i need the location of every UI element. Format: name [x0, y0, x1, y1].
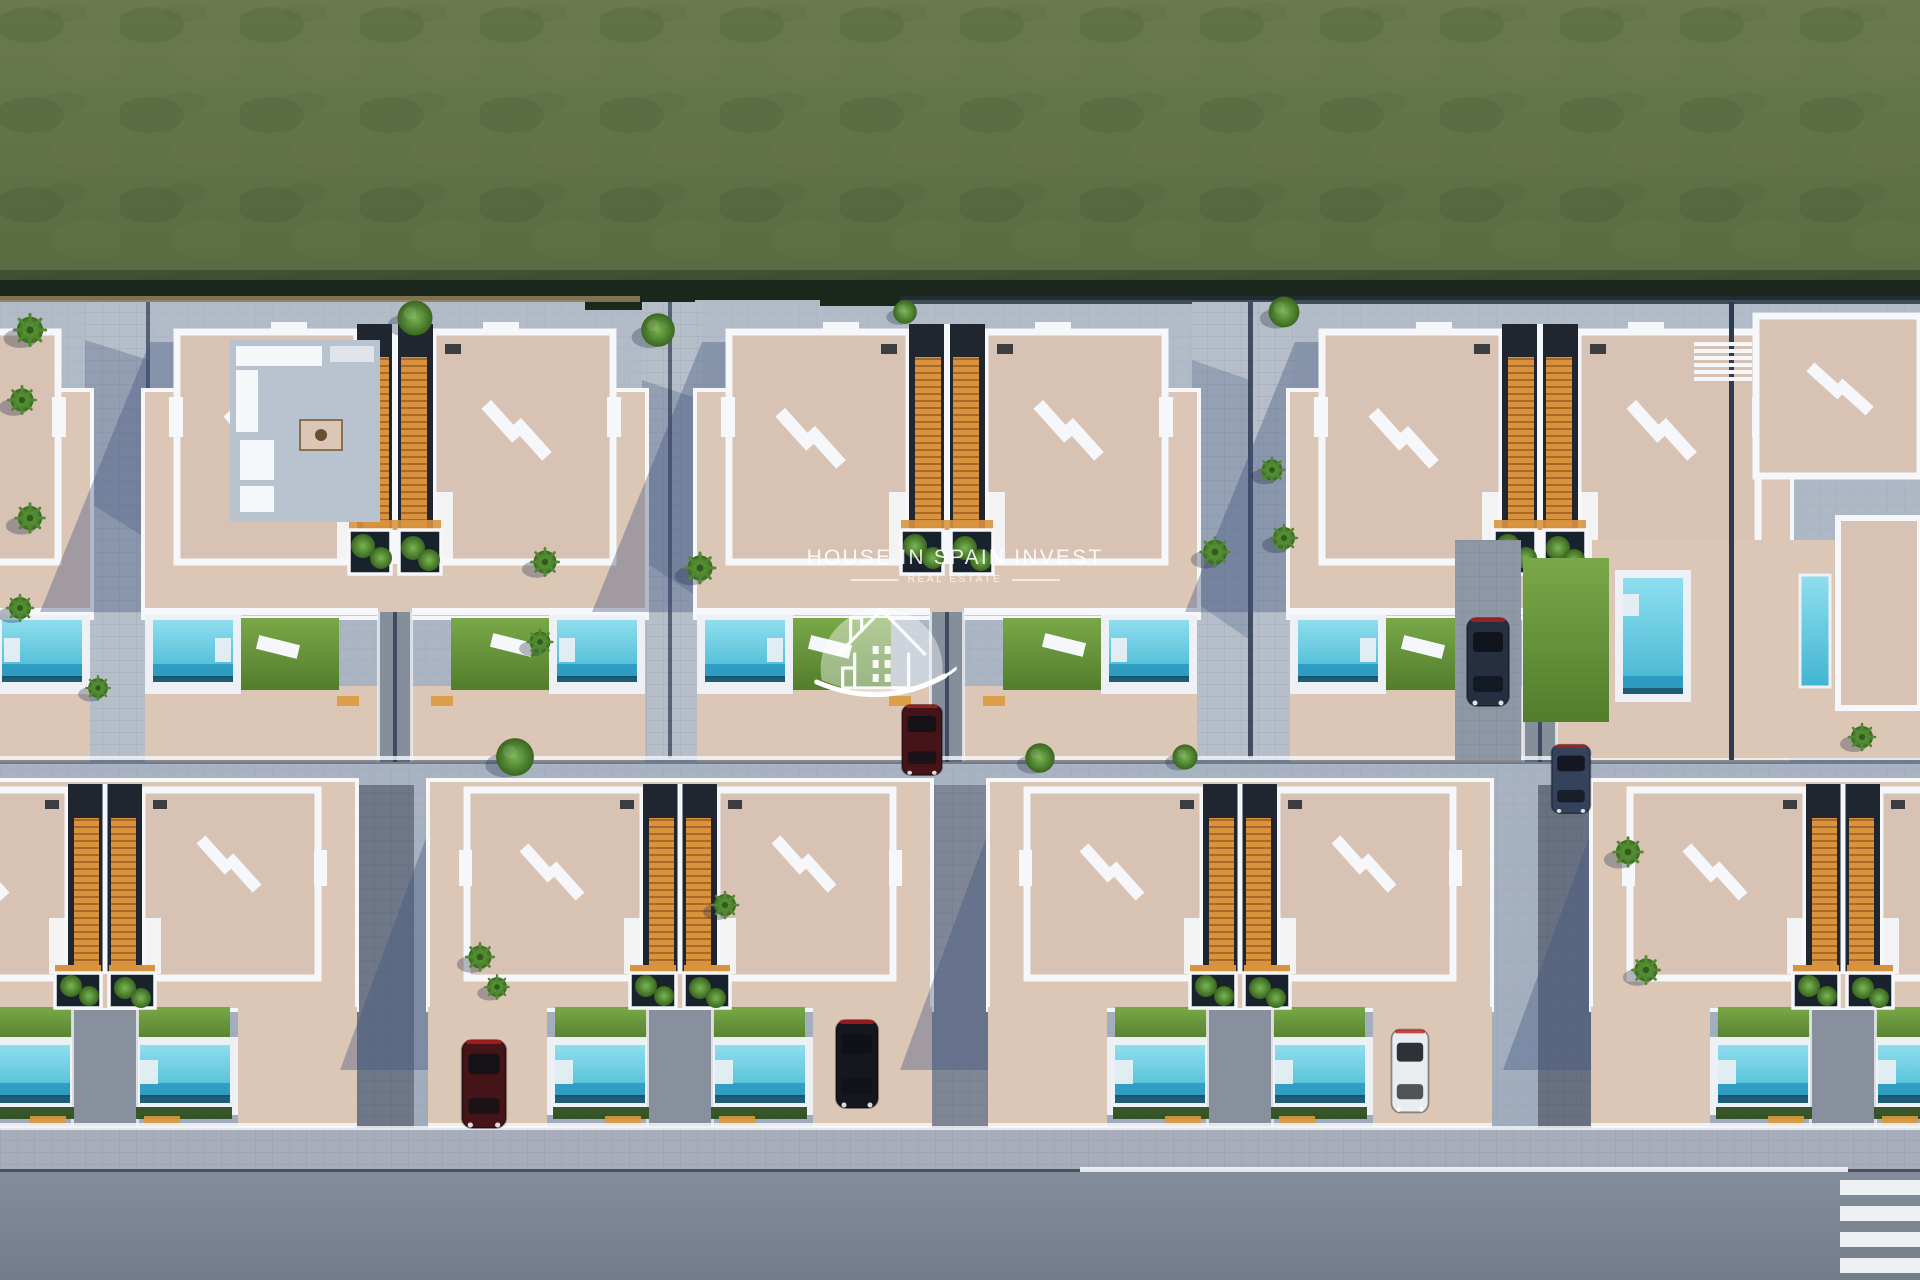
car-white	[1392, 1030, 1429, 1113]
car-dark	[1467, 618, 1509, 706]
car-dark-red-2	[902, 705, 942, 775]
corner-pool	[1615, 570, 1691, 702]
aerial-render-scene: HOUSE IN SPAIN INVEST REAL ESTATE	[0, 0, 1920, 1280]
road	[0, 1167, 1920, 1280]
corner-lawn	[1523, 558, 1609, 722]
car-dark-blue	[1552, 745, 1591, 814]
scene-art	[0, 0, 1920, 1280]
kitchen-cutaway	[230, 340, 380, 522]
road-edge-line	[1080, 1167, 1848, 1172]
sidewalk	[0, 1126, 1920, 1172]
car-black	[836, 1020, 878, 1108]
corner-villa-roof	[1756, 316, 1920, 476]
field	[0, 0, 1920, 286]
villa-pair-lower-partial-left	[0, 780, 357, 1128]
car-dark-red	[462, 1040, 506, 1128]
